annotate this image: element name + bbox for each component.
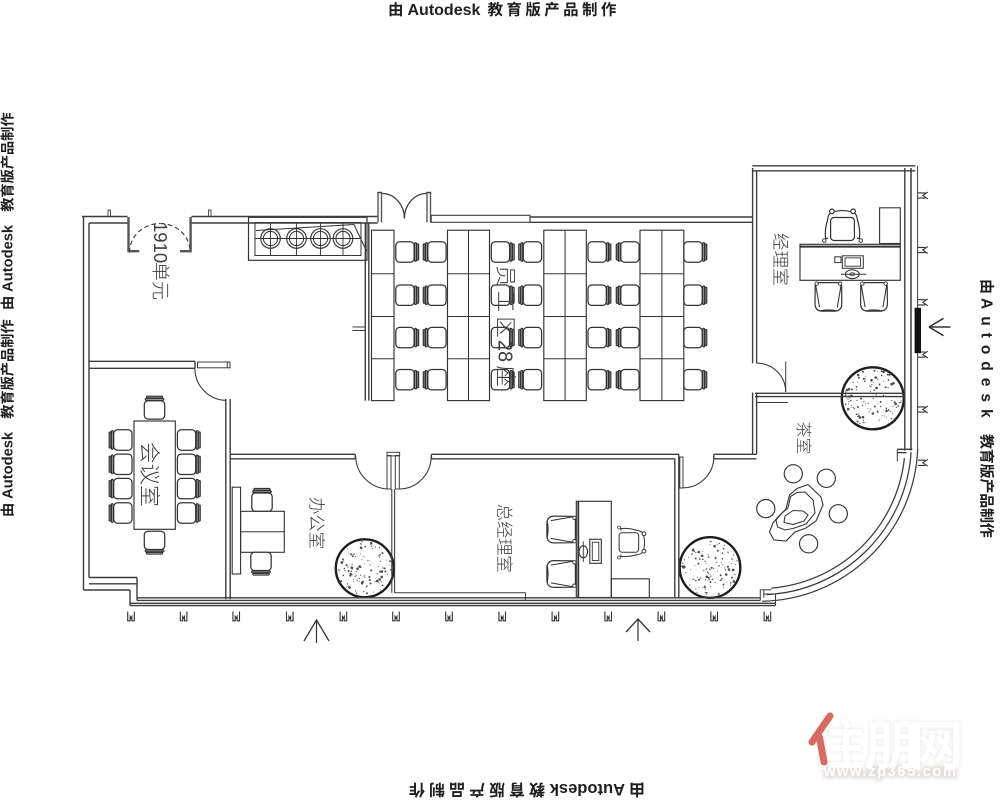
svg-text:www.zp365.com: www.zp365.com xyxy=(823,764,958,780)
svg-text:Autodesk: Autodesk xyxy=(549,780,625,798)
svg-text:Autodesk: Autodesk xyxy=(978,298,995,425)
svg-text:28: 28 xyxy=(493,340,515,362)
svg-text:1910: 1910 xyxy=(150,222,171,263)
svg-text:Autodesk: Autodesk xyxy=(1,431,17,499)
svg-text:Autodesk: Autodesk xyxy=(408,2,481,19)
svg-text:Autodesk: Autodesk xyxy=(1,224,17,292)
